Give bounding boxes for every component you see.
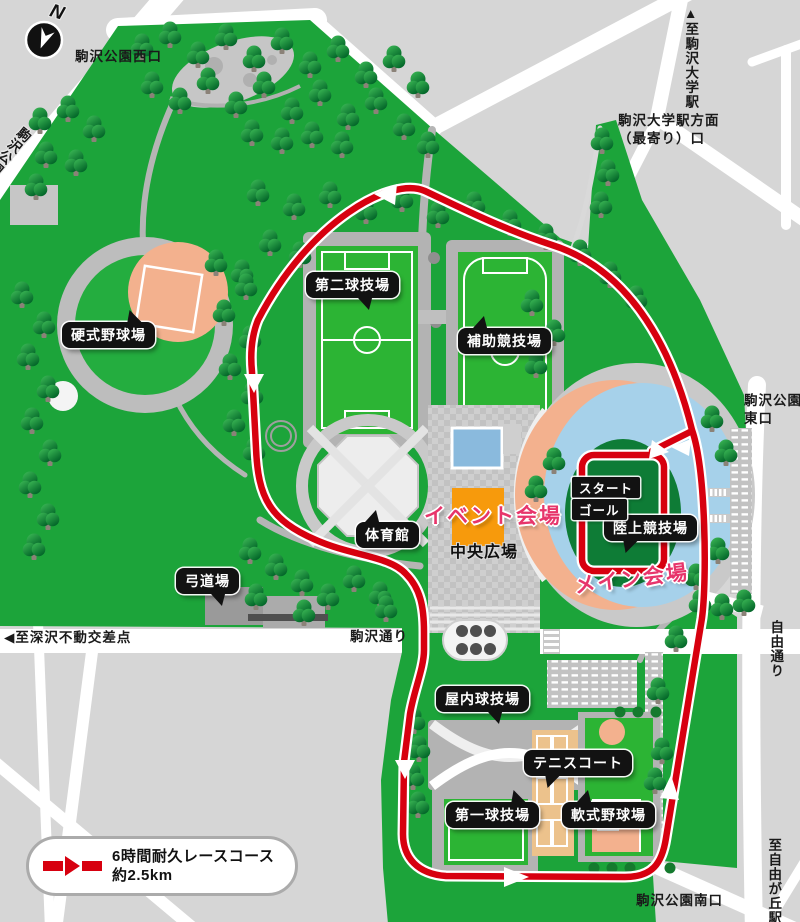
indoor-ball-field-bubble: 屋内球技場 [436, 686, 529, 712]
univ-station-entrance-label: 駒沢大学駅方面 （最寄り）口 [618, 112, 720, 148]
central-plaza-label: 中央広場 [450, 538, 518, 562]
compass-north-label: N [50, 2, 64, 24]
compass-icon [24, 20, 64, 60]
to-komazawa-univ-station-label: ▲至駒沢大学駅 [681, 6, 699, 109]
south-gate-label: 駒沢公園南口 [636, 892, 723, 910]
univ-station-entrance-line1: 駒沢大学駅方面 [618, 112, 720, 130]
legend-line2: 約2.5km [112, 866, 274, 886]
gymnasium-bubble: 体育館 [356, 522, 419, 548]
course-arrow-icon [43, 856, 102, 876]
kyudo-hall-bubble: 弓道場 [176, 568, 239, 594]
east-gate-label: 駒沢公園 東口 [744, 392, 800, 428]
jiyu-street-label: 自由通り [766, 620, 784, 678]
start-tag: スタート [572, 477, 640, 498]
east-gate-line1: 駒沢公園 [744, 392, 800, 410]
course-legend: 6時間耐久レースコース 約2.5km [26, 836, 298, 896]
to-jiyugaoka-station-label: 至自由が丘駅▼ [764, 838, 782, 922]
hardball-field-bubble: 硬式野球場 [62, 322, 155, 348]
legend-line1: 6時間耐久レースコース [112, 847, 274, 867]
softball-field-bubble: 軟式野球場 [562, 802, 655, 828]
compass [24, 20, 64, 65]
to-fukasawa-crossing-label: ◀至深沢不動交差点 [4, 629, 131, 647]
auxiliary-track-bubble: 補助競技場 [458, 328, 551, 354]
second-ball-field-bubble: 第二球技場 [306, 272, 399, 298]
univ-station-entrance-line2: （最寄り）口 [618, 130, 720, 148]
legend-text: 6時間耐久レースコース 約2.5km [112, 847, 274, 886]
park-course-map: N 駒沢公園西口 駒沢公園通り ▲至駒沢大学駅 駒沢大学駅方面 （最寄り）口 駒… [0, 0, 800, 922]
west-gate-label: 駒沢公園西口 [75, 48, 162, 66]
goal-tag: ゴール [572, 499, 627, 520]
event-venue-label: イベント会場 [424, 500, 562, 530]
tennis-courts-bubble: テニスコート [524, 750, 632, 776]
komazawa-street-label: 駒沢通り [350, 628, 408, 646]
east-gate-line2: 東口 [744, 410, 800, 428]
first-ball-field-bubble: 第一球技場 [446, 802, 539, 828]
